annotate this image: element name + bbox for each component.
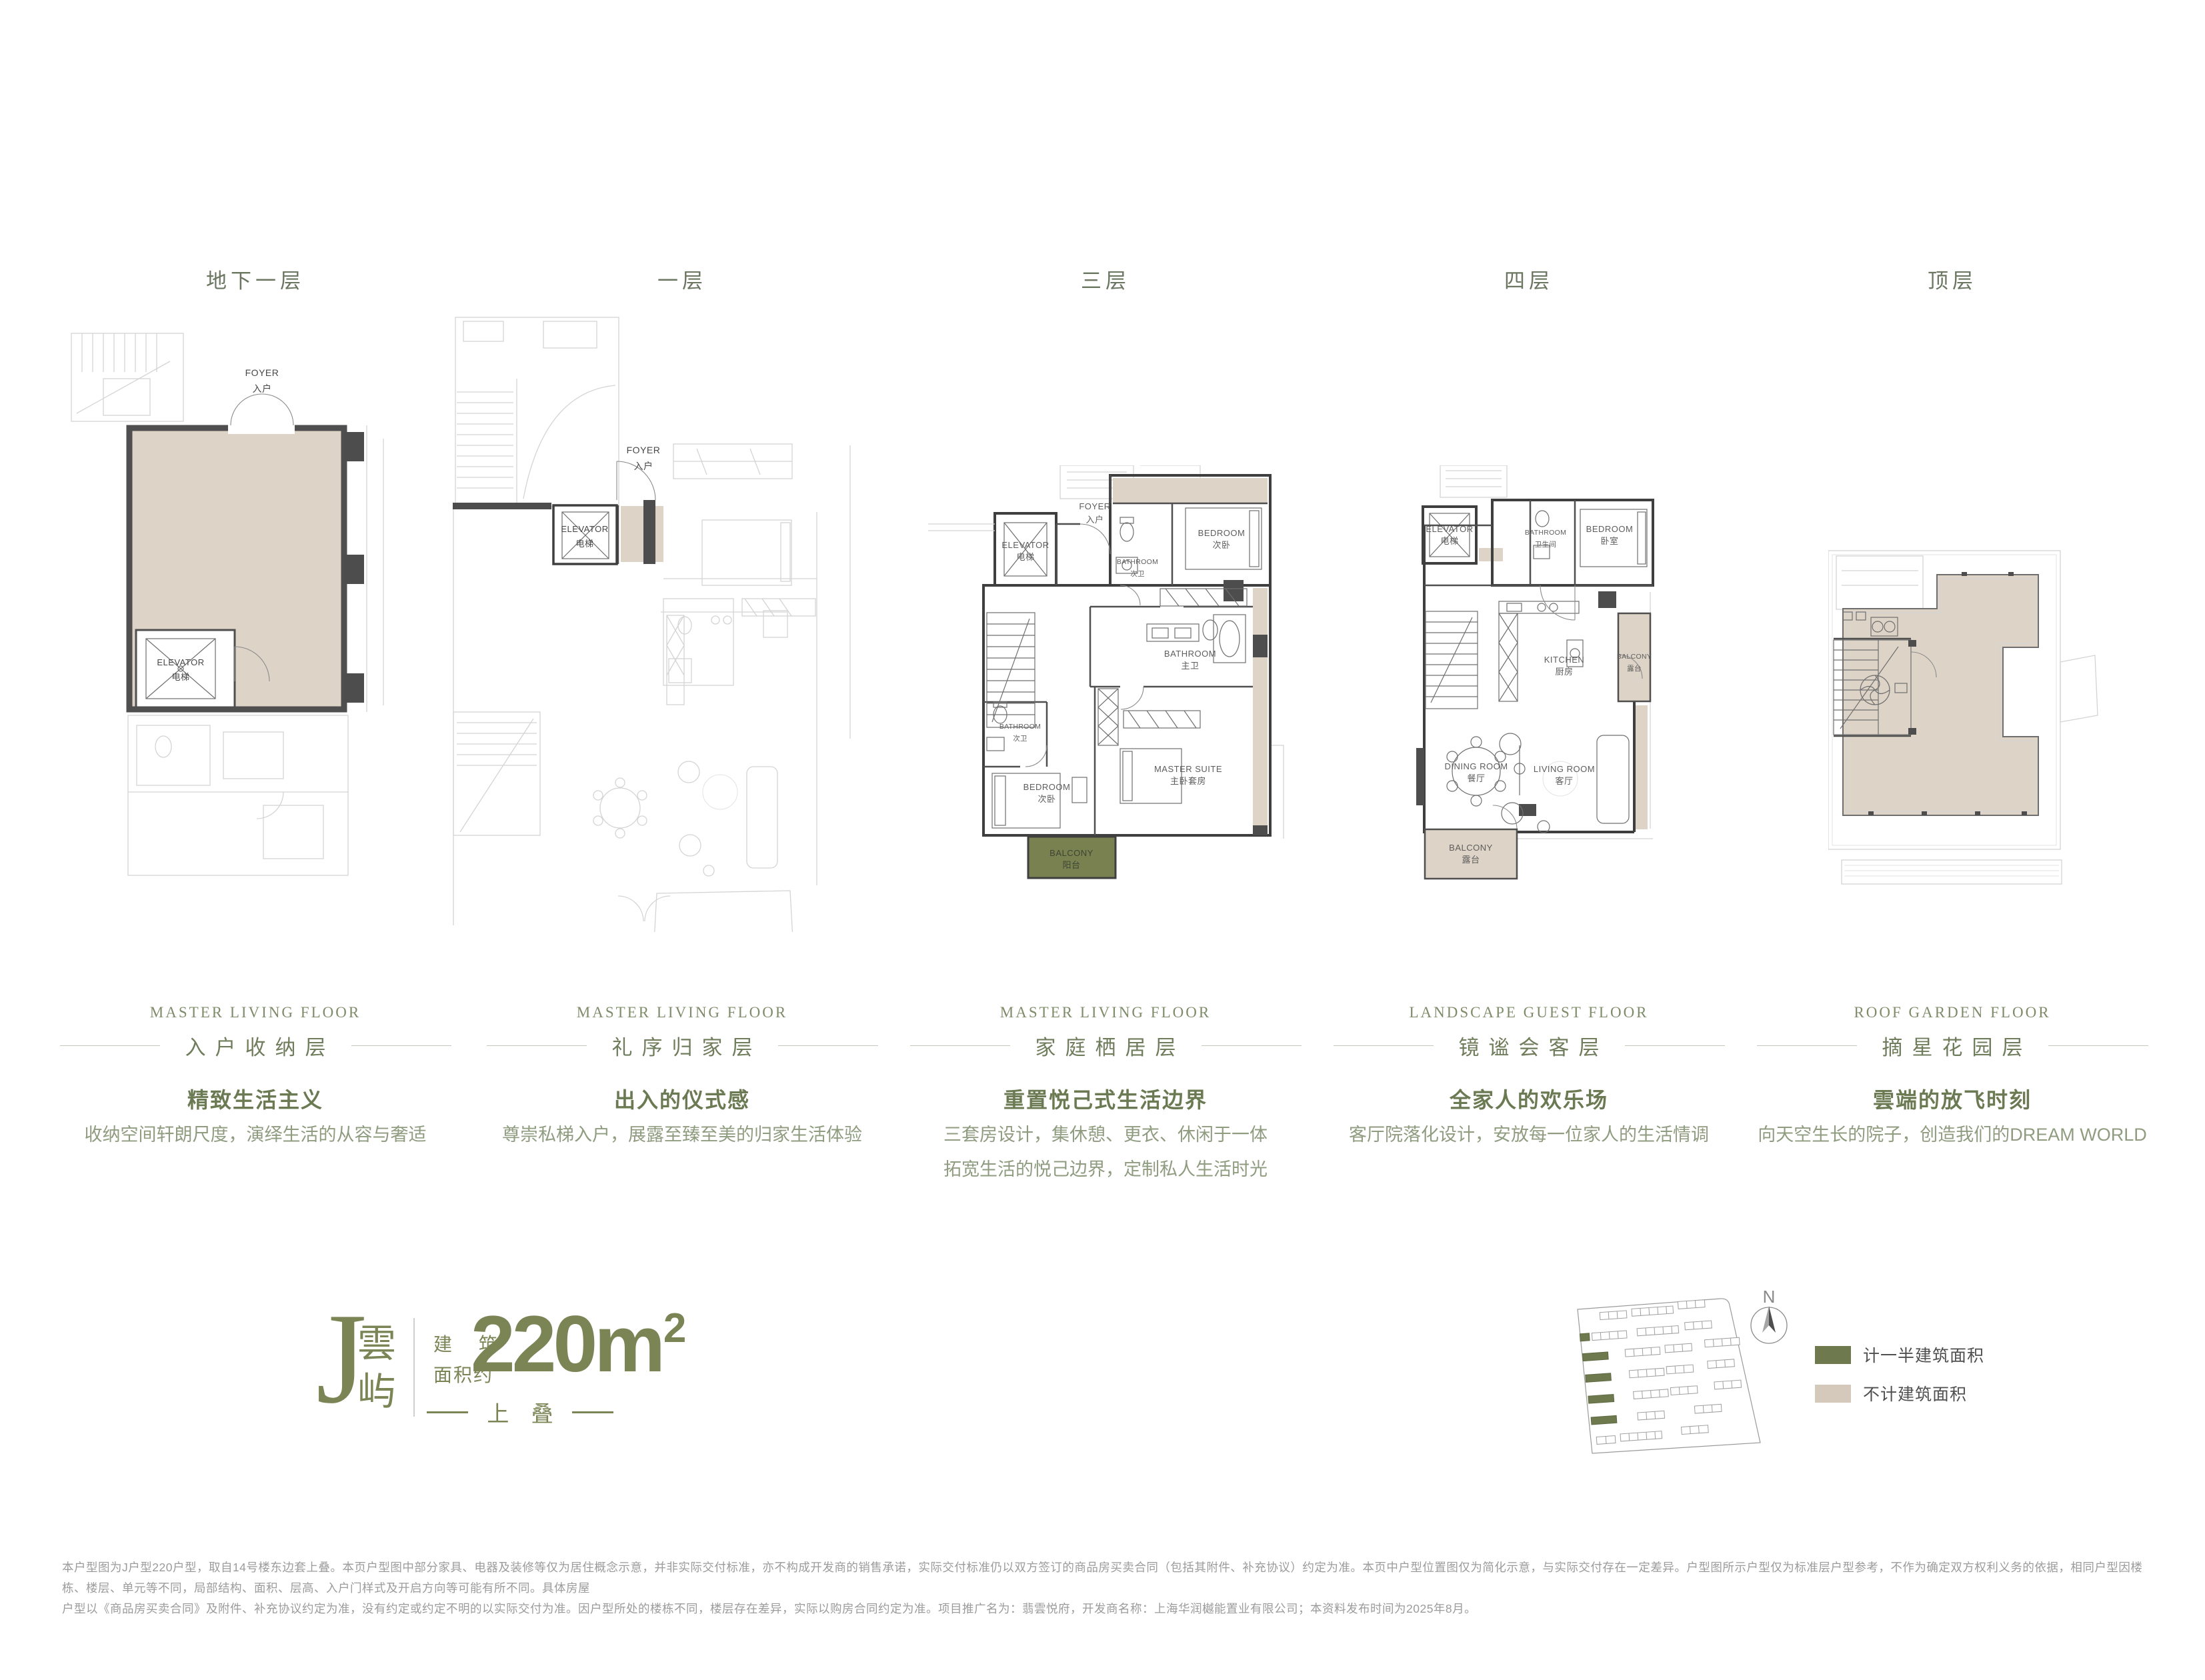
floor-english-title: ROOF GARDEN FLOOR xyxy=(1746,1004,2159,1021)
room-label-elevator-cn: 电梯 xyxy=(575,539,593,549)
floor-chinese-title: 入户收纳层 xyxy=(176,1031,335,1061)
room-label-bed-top: BEDROOM xyxy=(1198,528,1246,538)
floorplan-level4: ELEVATOR 电梯 BATHROOM 卫生间 BEDROOM 卧室 KITC… xyxy=(1340,465,1660,905)
floor-caption-f1: MASTER LIVING FLOOR 礼序归家层 出入的仪式感 尊崇私梯入户，… xyxy=(475,1004,889,1155)
floorplan-level3: ELEVATOR 电梯 FOYER 入户 BATHROOM 次卫 BEDROOM… xyxy=(920,465,1287,925)
divider-line xyxy=(351,1045,451,1046)
corridor-wall xyxy=(453,503,551,509)
room-label-bed: BEDROOM xyxy=(1586,524,1634,534)
room-label-bath-cn: 卫生间 xyxy=(1535,540,1556,549)
corridor-lines xyxy=(928,524,995,531)
room-label-bed-low: BEDROOM xyxy=(1023,782,1071,792)
room-label-bed-cn: 卧室 xyxy=(1600,536,1618,546)
wall-stub xyxy=(1253,635,1268,657)
floor-chinese-title: 镜谧会客层 xyxy=(1450,1031,1609,1061)
floor-description: 向天空生长的院子，创造我们的DREAM WORLD xyxy=(1746,1121,2159,1149)
highlighted-building xyxy=(1586,1373,1612,1383)
room-label-master-suite-cn: 主卧套房 xyxy=(1170,776,1206,786)
room-label-elevator-cn: 电梯 xyxy=(1016,552,1034,562)
legend-item-half-area: 计一半建筑面积 xyxy=(1815,1343,1984,1367)
room-label-balcony-east-cn: 露台 xyxy=(1627,664,1642,673)
wall-stub xyxy=(344,555,364,584)
compass-north-label: N xyxy=(1763,1287,1776,1307)
brand-divider-line xyxy=(413,1318,415,1417)
legend-item-excluded-area: 不计建筑面积 xyxy=(1815,1381,1984,1405)
divider-line xyxy=(487,1045,587,1046)
divider-line xyxy=(1757,1045,1857,1046)
room-label-bath: BATHROOM xyxy=(1525,529,1566,537)
disclaimer-line2: 户型以《商品房买卖合同》及附件、补充协议约定为准，没有约定或约定不明的以实际交付… xyxy=(62,1599,2149,1619)
room-label-bed-top-cn: 次卧 xyxy=(1212,540,1230,550)
side-area xyxy=(1634,705,1648,829)
divider-line xyxy=(2048,1045,2148,1046)
floor-title-row: 摘星花园层 xyxy=(1746,1031,2159,1061)
room-label-bath-low: BATHROOM xyxy=(999,723,1041,731)
area-number: 220m xyxy=(471,1304,662,1384)
room-label-kitchen: KITCHEN xyxy=(1544,655,1585,665)
compass-needle-light xyxy=(1762,1306,1769,1333)
room-label-foyer-cn: 入户 xyxy=(1085,515,1104,525)
room-label-bath-master: BATHROOM xyxy=(1164,649,1216,659)
room-label-bath-master-cn: 主卫 xyxy=(1181,661,1199,671)
room-label-kitchen-cn: 厨房 xyxy=(1555,667,1573,677)
wall-stub xyxy=(1253,825,1268,835)
floor-headline: 全家人的欢乐场 xyxy=(1322,1083,1736,1114)
floor-label-b1: 地下一层 xyxy=(155,264,355,294)
floorplan-level1: FOYER 入户 ELEVATOR 电梯 xyxy=(443,312,857,932)
room-label-bath-low-cn: 次卫 xyxy=(1013,734,1027,743)
floor-description: 拓宽生活的悦己边界，定制私人生活时光 xyxy=(899,1155,1312,1183)
floor-label-f3: 三层 xyxy=(1005,264,1206,294)
fixtures xyxy=(1426,509,1647,833)
room-label-foyer-cn: 入户 xyxy=(253,383,272,394)
side-area xyxy=(1253,588,1268,825)
floor-english-title: MASTER LIVING FLOOR xyxy=(899,1004,1312,1021)
room-label-balcony-east: BALCONY xyxy=(1617,653,1652,661)
floor-headline: 重置悦己式生活边界 xyxy=(899,1083,1312,1114)
tagline-text: 上 叠 xyxy=(479,1396,561,1428)
floor-caption-roof: ROOF GARDEN FLOOR 摘星花园层 雲端的放飞时刻 向天空生长的院子… xyxy=(1746,1004,2159,1155)
floor-headline: 雲端的放飞时刻 xyxy=(1746,1083,2159,1114)
highlighted-building xyxy=(1588,1395,1614,1404)
floor-headline: 精致生活主义 xyxy=(49,1083,462,1114)
stack-tagline: 上 叠 xyxy=(427,1396,613,1428)
upper-block-walls xyxy=(1492,500,1653,585)
wall-stub xyxy=(1598,591,1616,608)
room-label-dining: DINING ROOM xyxy=(1444,761,1508,771)
compass: N xyxy=(1746,1287,1792,1350)
floor-label-roof: 顶层 xyxy=(1852,264,2052,294)
tagline-rule-left xyxy=(427,1411,468,1413)
floor-english-title: MASTER LIVING FLOOR xyxy=(475,1004,889,1021)
faint-structure xyxy=(453,317,850,932)
elevator-shaft xyxy=(1423,507,1476,563)
floorplan-basement: FOYER 入户 ELEVATOR 电梯 xyxy=(63,332,397,885)
site-plan xyxy=(1566,1295,1774,1456)
room-label-bed-low-cn: 次卧 xyxy=(1037,794,1055,804)
divider-line xyxy=(1625,1045,1725,1046)
door-opening xyxy=(228,419,295,434)
foyer-floor xyxy=(621,506,663,562)
floor-title-row: 入户收纳层 xyxy=(49,1031,462,1061)
floor-description: 客厅院落化设计，安放每一位家人的生活情调 xyxy=(1322,1121,1736,1149)
unit-name: 雲 屿 xyxy=(356,1320,397,1416)
floor-chinese-title: 礼序归家层 xyxy=(603,1031,762,1061)
room-label-elevator: ELEVATOR xyxy=(561,524,608,534)
divider-line xyxy=(778,1045,878,1046)
floor-headline: 出入的仪式感 xyxy=(475,1083,889,1114)
floor-caption-b1: MASTER LIVING FLOOR 入户收纳层 精致生活主义 收纳空间轩朗尺… xyxy=(49,1004,462,1155)
unit-name-char2: 屿 xyxy=(356,1368,397,1416)
room-label-elevator: ELEVATOR xyxy=(1426,524,1473,534)
legend-swatch-green xyxy=(1815,1346,1851,1364)
room-label-foyer: FOYER xyxy=(245,367,279,378)
room-label-balcony-south: BALCONY xyxy=(1449,843,1493,853)
wall-stub xyxy=(1224,580,1244,601)
floor-title-row: 礼序归家层 xyxy=(475,1031,889,1061)
room-label-foyer-cn: 入户 xyxy=(634,461,653,471)
floor-title-row: 镜谧会客层 xyxy=(1322,1031,1736,1061)
room-label-elevator: ELEVATOR xyxy=(1001,540,1049,550)
room-label-balcony: BALCONY xyxy=(1049,848,1093,858)
divider-line xyxy=(1334,1045,1434,1046)
floor-label-f4: 四层 xyxy=(1429,264,1629,294)
room-label-elevator-cn: 电梯 xyxy=(1440,536,1458,546)
compass-needle-dark xyxy=(1769,1306,1776,1333)
room-label-elevator: ELEVATOR xyxy=(157,657,204,667)
legend-label: 计一半建筑面积 xyxy=(1863,1343,1984,1367)
room-label-elevator-cn: 电梯 xyxy=(171,672,189,682)
floor-description: 尊崇私梯入户，展露至臻至美的归家生活体验 xyxy=(475,1121,889,1149)
brochure-page: 地下一层 一层 三层 四层 顶层 xyxy=(0,0,2205,1680)
legend-swatch-beige xyxy=(1815,1385,1851,1403)
wall-stub xyxy=(1519,804,1536,816)
unit-name-char1: 雲 xyxy=(356,1320,397,1368)
room-label-balcony-south-cn: 露台 xyxy=(1462,855,1480,865)
room-label-master-suite: MASTER SUITE xyxy=(1154,764,1222,774)
site-buildings xyxy=(1578,1297,1746,1445)
wall-stub xyxy=(1416,748,1424,805)
room-label-balcony-cn: 阳台 xyxy=(1062,860,1080,870)
room-label-bath-top: BATHROOM xyxy=(1117,558,1158,566)
room-label-foyer: FOYER xyxy=(627,445,661,455)
floorplan-roof xyxy=(1828,532,2108,905)
divider-line xyxy=(60,1045,160,1046)
floor-chinese-title: 摘星花园层 xyxy=(1873,1031,2032,1061)
highlighted-building xyxy=(1591,1415,1617,1425)
balcony-south-area xyxy=(1425,829,1517,879)
divider-line xyxy=(910,1045,1010,1046)
disclaimer: 本户型图为J户型220户型，取自14号楼东边套上叠。本页户型图中部分家具、电器及… xyxy=(62,1557,2149,1619)
floor-caption-f4: LANDSCAPE GUEST FLOOR 镜谧会客层 全家人的欢乐场 客厅院落… xyxy=(1322,1004,1736,1155)
disclaimer-line1: 本户型图为J户型220户型，取自14号楼东边套上叠。本页户型图中部分家具、电器及… xyxy=(62,1557,2149,1599)
divider-line xyxy=(1202,1045,1302,1046)
floor-english-title: LANDSCAPE GUEST FLOOR xyxy=(1322,1004,1736,1021)
area-value: 220m 2 xyxy=(471,1304,686,1384)
floor-description: 收纳空间轩朗尺度，演绎生活的从容与奢适 xyxy=(49,1121,462,1149)
room-label-living-cn: 客厅 xyxy=(1555,776,1573,786)
floor-label-f1: 一层 xyxy=(582,264,782,294)
floor-description: 三套房设计，集休憩、更衣、休闲于一体 xyxy=(899,1121,1312,1149)
wall-stub xyxy=(643,500,655,564)
floor-english-title: MASTER LIVING FLOOR xyxy=(49,1004,462,1021)
floor-chinese-title: 家庭栖居层 xyxy=(1026,1031,1186,1061)
floor-caption-f3: MASTER LIVING FLOOR 家庭栖居层 重置悦己式生活边界 三套房设… xyxy=(899,1004,1312,1183)
area-superscript: 2 xyxy=(663,1308,686,1349)
tagline-rule-right xyxy=(572,1411,613,1413)
wall-stub xyxy=(344,432,364,461)
elevator-shaft xyxy=(553,505,617,564)
room-label-living: LIVING ROOM xyxy=(1534,764,1595,774)
closet-area xyxy=(1113,478,1268,503)
room-label-dining-cn: 餐厅 xyxy=(1467,773,1485,783)
highlighted-building xyxy=(1583,1352,1609,1361)
legend-label: 不计建筑面积 xyxy=(1863,1381,1967,1405)
room-label-foyer: FOYER xyxy=(1079,501,1110,511)
legend: 计一半建筑面积 不计建筑面积 xyxy=(1815,1343,1984,1420)
floor-title-row: 家庭栖居层 xyxy=(899,1031,1312,1061)
highlighted-building xyxy=(1580,1333,1590,1341)
wall-stub xyxy=(344,673,364,703)
main-walls xyxy=(1424,525,1634,832)
room-label-bath-top-cn: 次卫 xyxy=(1130,569,1145,578)
